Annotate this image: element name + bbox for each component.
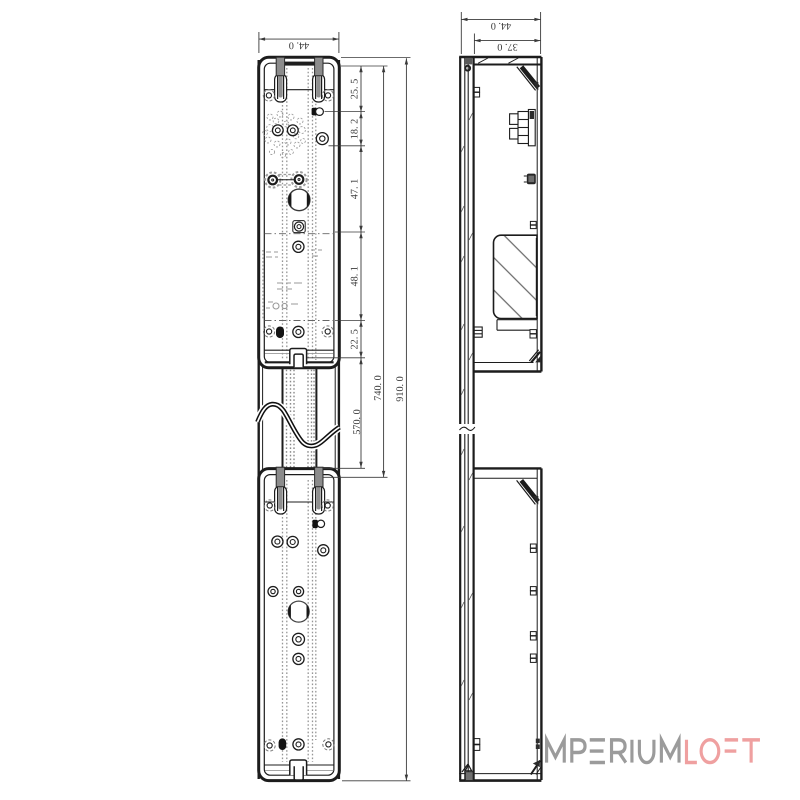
svg-text:48. 1: 48. 1 (349, 266, 360, 286)
svg-text:18. 2: 18. 2 (349, 119, 360, 139)
svg-text:22. 5: 22. 5 (349, 329, 360, 349)
svg-text:25. 5: 25. 5 (349, 79, 360, 99)
svg-text:740. 0: 740. 0 (373, 375, 384, 400)
svg-text:37. 0: 37. 0 (497, 41, 517, 52)
svg-text:570. 0: 570. 0 (352, 409, 363, 434)
svg-text:47. 1: 47. 1 (349, 179, 360, 199)
svg-text:44. 0: 44. 0 (289, 40, 309, 51)
svg-text:910. 0: 910. 0 (395, 376, 406, 401)
svg-text:44. 0: 44. 0 (491, 20, 511, 31)
